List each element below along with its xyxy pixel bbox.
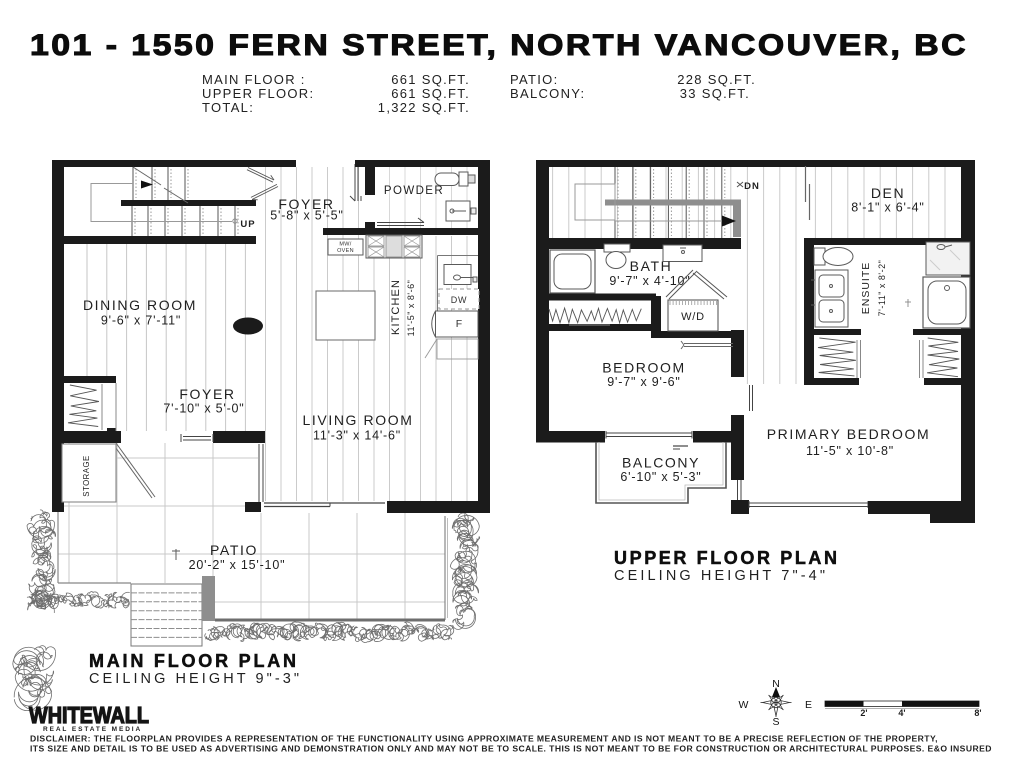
svg-text:4': 4' [898,708,905,718]
svg-text:11'-5" x 8'-6": 11'-5" x 8'-6" [406,280,416,337]
svg-text:MW/: MW/ [339,242,351,248]
svg-text:228 SQ.FT.: 228 SQ.FT. [677,72,756,87]
svg-text:W: W [739,699,749,711]
svg-text:WHITEWALL: WHITEWALL [29,702,149,728]
svg-text:REAL ESTATE MEDIA: REAL ESTATE MEDIA [43,726,142,733]
svg-text:KITCHEN: KITCHEN [390,279,402,335]
svg-text:33 SQ.FT.: 33 SQ.FT. [680,86,750,101]
svg-text:F: F [456,318,462,330]
svg-text:MAIN FLOOR PLAN: MAIN FLOOR PLAN [89,651,296,671]
svg-text:DINING ROOM: DINING ROOM [83,297,197,313]
svg-text:PRIMARY BEDROOM: PRIMARY BEDROOM [767,426,931,442]
svg-text:DW: DW [451,295,468,305]
svg-text:BEDROOM: BEDROOM [602,360,686,376]
svg-text:661 SQ.FT.: 661 SQ.FT. [391,72,470,87]
svg-text:DEN: DEN [871,185,905,201]
svg-text:MAIN FLOOR :: MAIN FLOOR : [202,72,306,87]
svg-text:20'-2" x 15'-10": 20'-2" x 15'-10" [189,558,286,572]
svg-text:7'-10" x 5'-0": 7'-10" x 5'-0" [163,402,244,416]
svg-text:FOYER: FOYER [179,386,235,402]
svg-text:POWDER: POWDER [384,185,444,197]
svg-text:OVEN: OVEN [337,248,354,254]
svg-text:1,322 SQ.FT.: 1,322 SQ.FT. [378,100,470,115]
svg-text:PATIO: PATIO [210,542,258,558]
svg-text:E: E [805,699,812,711]
svg-text:9'-7" x 9'-6": 9'-7" x 9'-6" [607,375,680,389]
svg-text:UP: UP [240,219,255,230]
svg-text:661 SQ.FT.: 661 SQ.FT. [391,86,470,101]
svg-text:CEILING HEIGHT 7"-4": CEILING HEIGHT 7"-4" [614,568,825,584]
svg-text:ENSUITE: ENSUITE [860,262,872,315]
svg-text:DISCLAIMER: THE FLOORPLAN PROV: DISCLAIMER: THE FLOORPLAN PROVIDES A REP… [30,734,938,744]
svg-text:5'-8" x 5'-5": 5'-8" x 5'-5" [270,209,343,223]
svg-text:LIVING ROOM: LIVING ROOM [303,412,414,428]
svg-text:BALCONY: BALCONY [622,455,700,471]
svg-text:7'-11" x 8'-2": 7'-11" x 8'-2" [877,260,887,317]
svg-text:2': 2' [860,708,867,718]
svg-text:11'-5" x 10'-8": 11'-5" x 10'-8" [806,444,894,458]
svg-text:ITS SIZE AND DETAIL IS TO BE U: ITS SIZE AND DETAIL IS TO BE USED AS ADV… [30,744,992,754]
svg-text:101 - 1550 FERN STREET, NORTH: 101 - 1550 FERN STREET, NORTH VANCOUVER,… [30,29,968,62]
svg-text:8': 8' [974,708,981,718]
svg-text:BALCONY:: BALCONY: [510,86,585,101]
svg-text:6'-10" x 5'-3": 6'-10" x 5'-3" [620,470,701,484]
svg-text:CEILING HEIGHT 9"-3": CEILING HEIGHT 9"-3" [89,671,299,687]
svg-text:UPPER FLOOR:: UPPER FLOOR: [202,86,314,101]
svg-text:11'-3" x 14'-6": 11'-3" x 14'-6" [313,429,401,443]
svg-text:BATH: BATH [630,258,673,274]
svg-text:DN: DN [744,181,760,192]
svg-text:9'-6" x 7'-11": 9'-6" x 7'-11" [101,314,181,328]
svg-text:UPPER FLOOR PLAN: UPPER FLOOR PLAN [614,548,837,568]
svg-text:9'-7" x 4'-10": 9'-7" x 4'-10" [609,274,690,288]
svg-text:PATIO:: PATIO: [510,72,559,87]
svg-text:STORAGE: STORAGE [82,455,91,496]
svg-text:8'-1" x 6'-4": 8'-1" x 6'-4" [851,201,924,215]
svg-text:S: S [772,716,779,728]
svg-text:TOTAL:: TOTAL: [202,100,254,115]
svg-text:W/D: W/D [681,311,705,323]
svg-text:N: N [772,678,780,690]
